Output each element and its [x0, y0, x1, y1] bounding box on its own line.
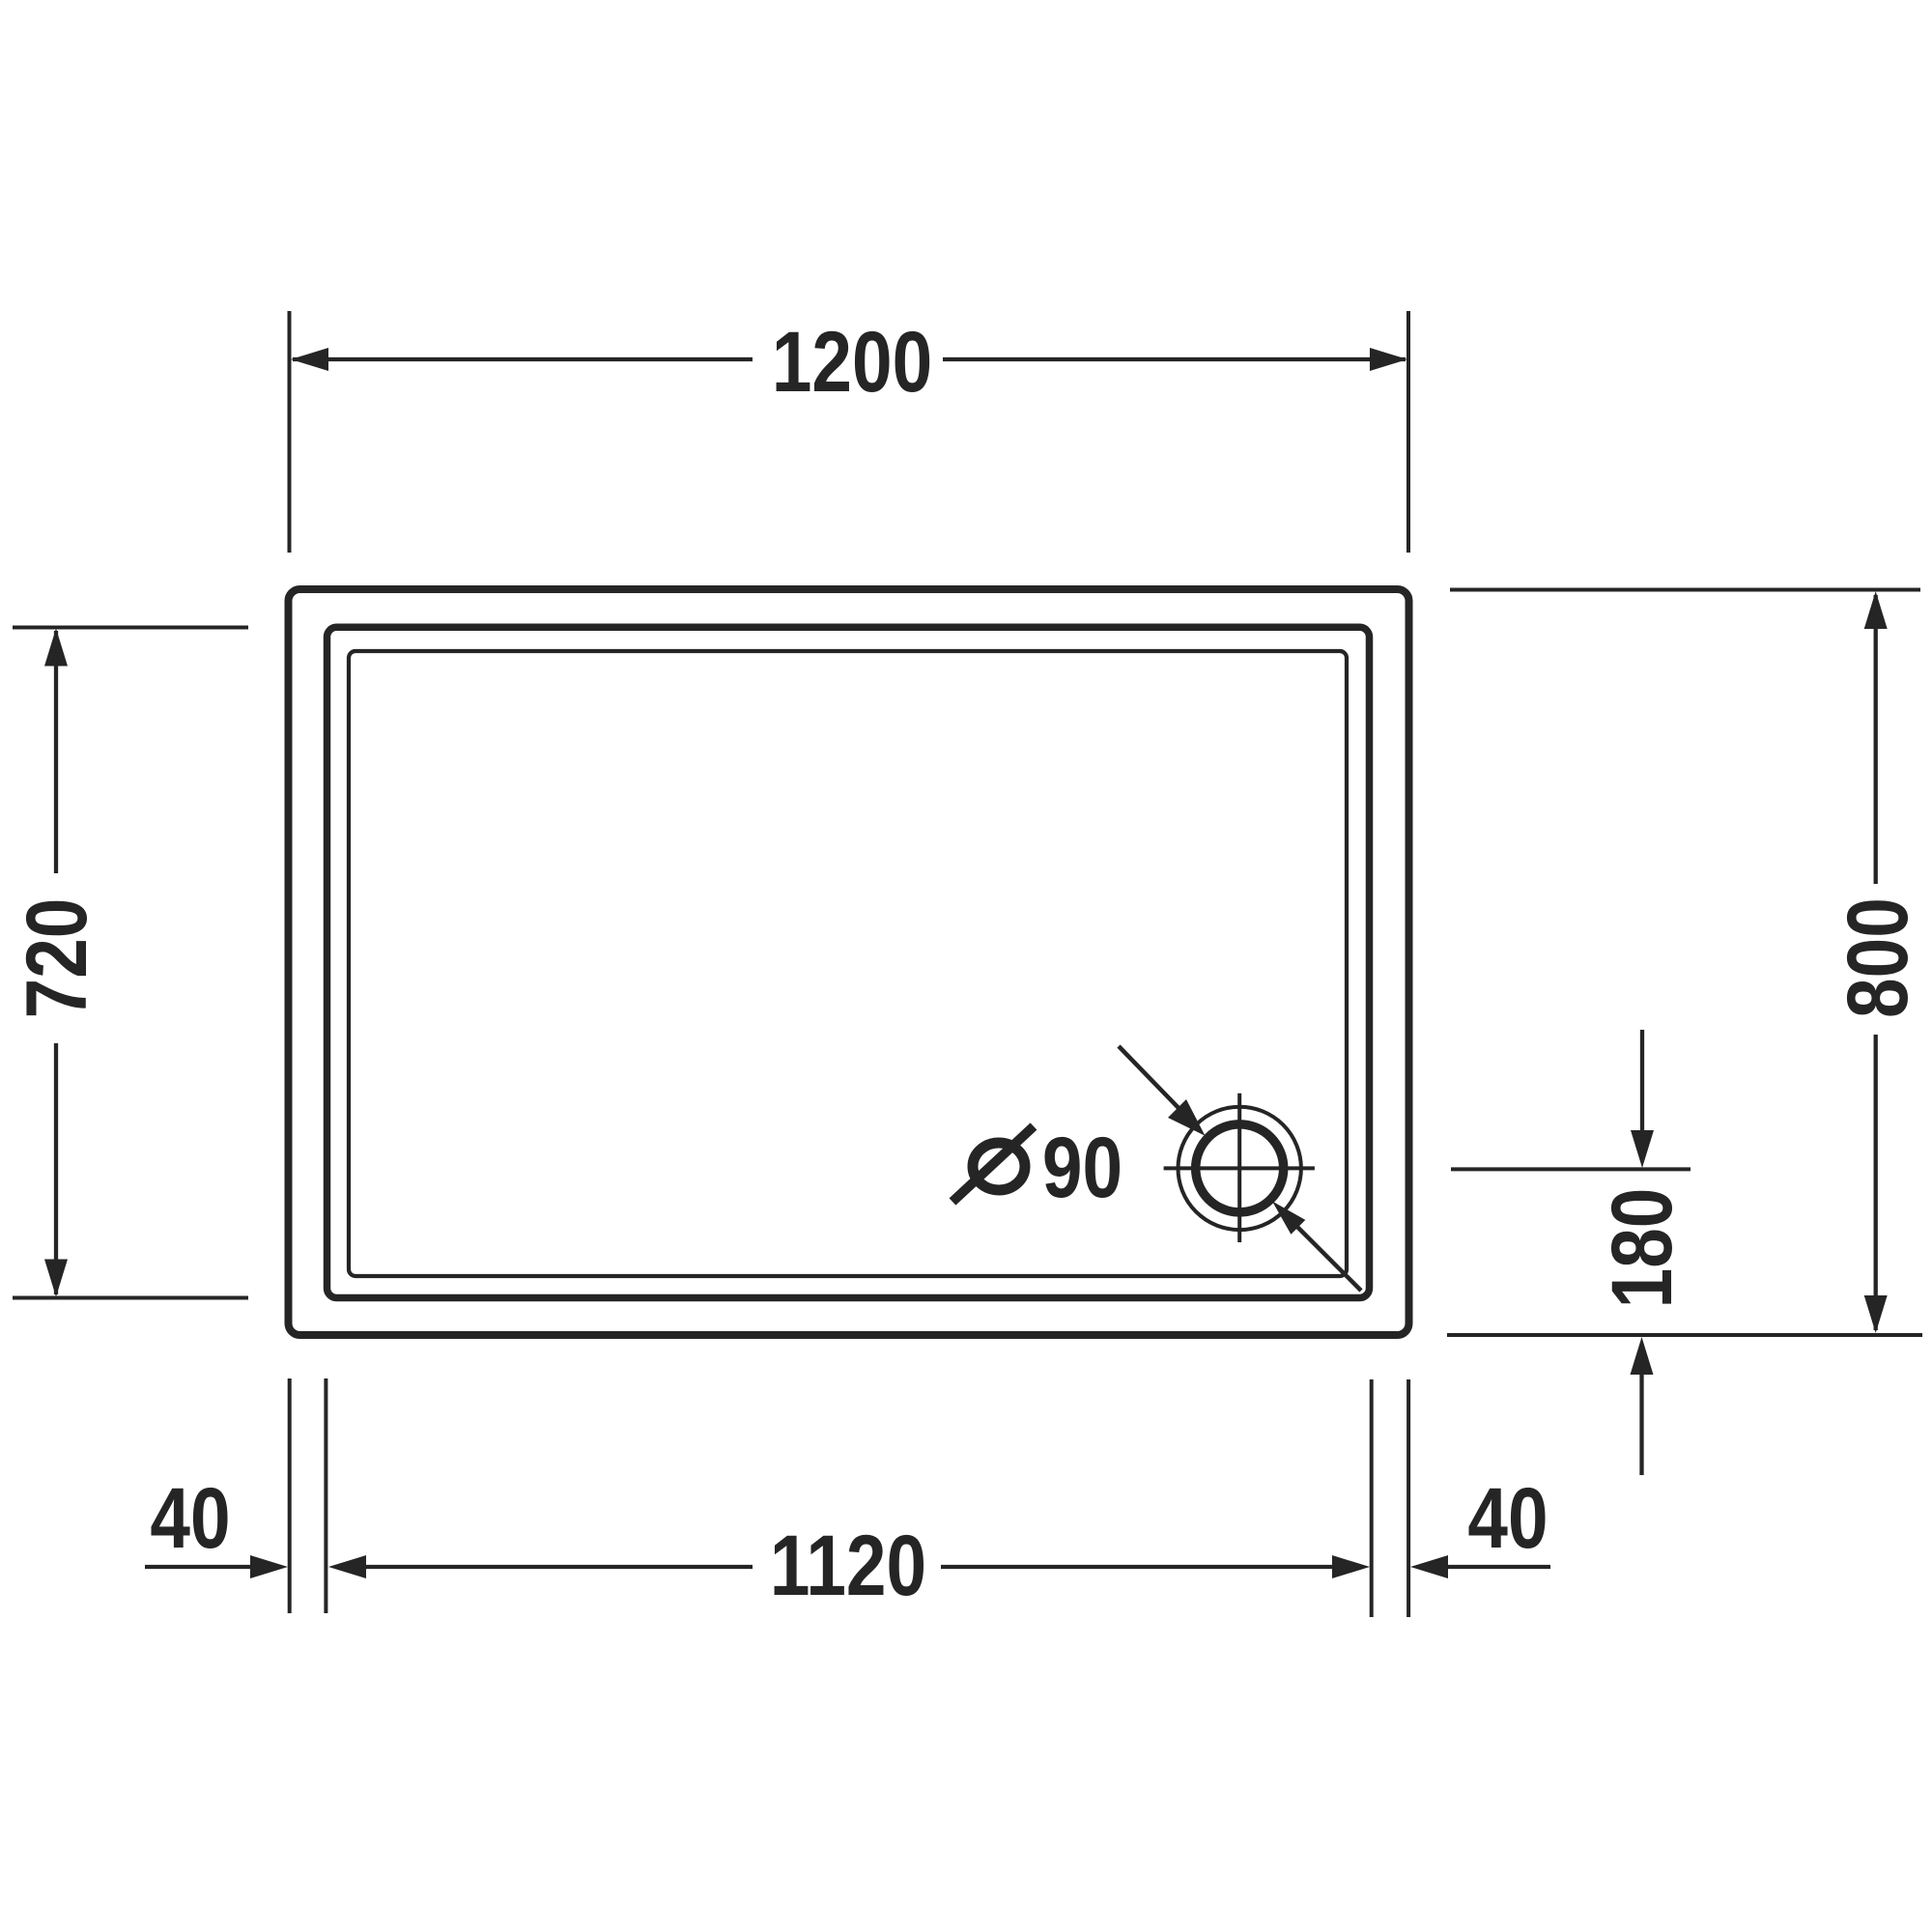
svg-text:800: 800 [1831, 897, 1926, 1018]
svg-text:40: 40 [150, 1471, 230, 1567]
svg-text:720: 720 [10, 898, 105, 1019]
svg-text:90: 90 [1042, 1121, 1122, 1216]
svg-text:40: 40 [1467, 1471, 1548, 1567]
svg-text:1120: 1120 [770, 1519, 926, 1614]
svg-text:1200: 1200 [772, 315, 932, 411]
svg-text:180: 180 [1595, 1188, 1690, 1309]
